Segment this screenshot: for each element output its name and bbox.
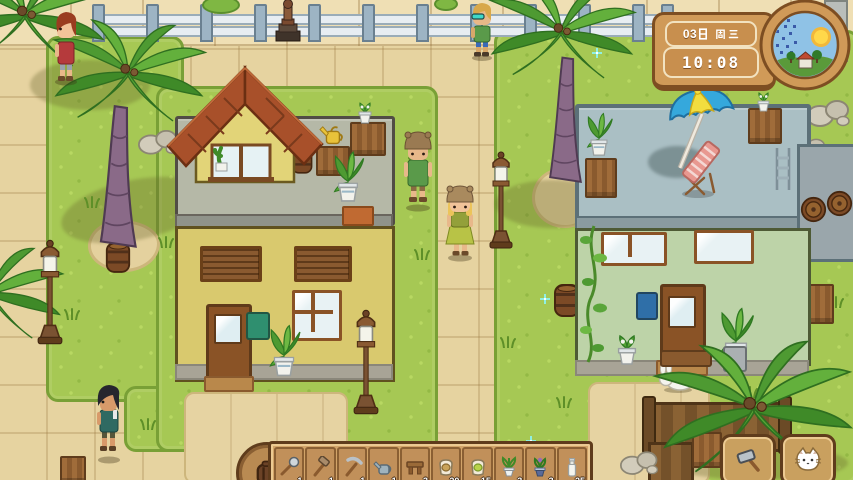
- npc-sunglasses-kid[interactable]: [464, 0, 500, 62]
- door-step: [204, 376, 254, 392]
- glyph-ri: [698, 28, 708, 40]
- item-count: 1: [360, 476, 365, 480]
- time-text: 10:08: [682, 53, 740, 72]
- npc-red-shirt-boy[interactable]: [48, 6, 84, 86]
- build-mode-button[interactable]: [720, 434, 776, 480]
- wall-vine: [574, 222, 626, 364]
- grass-tuft: [158, 236, 174, 248]
- game-screen: 03 03日 周三 10:08: [0, 0, 853, 480]
- potted-plant: [266, 320, 302, 378]
- barrel: [826, 190, 853, 217]
- item-count: 1: [329, 476, 334, 480]
- window-bar: [295, 310, 333, 314]
- potted-flower-icon: [529, 456, 551, 478]
- item-count: 20: [449, 476, 459, 480]
- hotbar-slot-potted-plant[interactable]: 3: [494, 447, 524, 480]
- hotbar-slot-shovel[interactable]: 1: [274, 447, 304, 480]
- small-potted-plant: [355, 102, 375, 124]
- small-crate: [60, 456, 86, 480]
- grass-tuft: [140, 418, 156, 430]
- date-display: 03 03日 周三: [665, 21, 757, 47]
- pickaxe-icon: [341, 456, 363, 478]
- street-lamp: [36, 236, 64, 348]
- shuttered-window: [294, 246, 352, 282]
- fence-post: [308, 4, 321, 42]
- grass-tuft: [414, 248, 430, 260]
- stool-icon: [404, 456, 426, 478]
- shuttered-window: [200, 246, 262, 282]
- potted-plant: [330, 148, 366, 202]
- street-lamp: [352, 306, 380, 418]
- hotbar-slot-seed-bag[interactable]: 20: [431, 447, 461, 480]
- item-count: 3: [423, 476, 428, 480]
- potted-plant-icon: [498, 456, 520, 478]
- npc-dark-hair-boy[interactable]: [90, 380, 128, 464]
- glyph-san: [728, 28, 739, 40]
- hotbar-slot-hammer[interactable]: 1: [305, 447, 335, 480]
- blue-mailbox[interactable]: [636, 292, 658, 320]
- time-display: 10:08: [663, 47, 759, 78]
- item-count: 3: [549, 476, 554, 480]
- hotbar-slot-potted-flower[interactable]: 3: [525, 447, 555, 480]
- statue: [271, 0, 305, 44]
- item-count: 1: [392, 476, 397, 480]
- grass-tuft: [556, 396, 572, 408]
- hammer-icon: [310, 456, 332, 478]
- hotbar-slot-pickaxe[interactable]: 1: [337, 447, 367, 480]
- seed-bag-icon: [435, 456, 457, 478]
- mallet-icon: [734, 446, 762, 474]
- fence-post: [416, 4, 429, 42]
- npc-green-dress-woman[interactable]: [440, 182, 480, 262]
- date-day: 03: [683, 27, 697, 41]
- barrel: [800, 196, 827, 223]
- fence-post: [362, 4, 375, 42]
- deck-bench: [748, 108, 782, 144]
- rocks: [806, 94, 852, 128]
- seed-bag-icon: [467, 456, 489, 478]
- small-potted-plant: [754, 92, 773, 112]
- hotbar-slot-stool[interactable]: 3: [400, 447, 430, 480]
- planter-box: [342, 206, 374, 226]
- shovel-icon: [278, 456, 300, 478]
- bottle-icon: [561, 456, 583, 478]
- beach-umbrella: [662, 88, 738, 178]
- door-window: [668, 296, 696, 328]
- npc-green-vest-man[interactable]: [398, 128, 438, 212]
- pool-ladder: [772, 142, 796, 196]
- door-window: [214, 314, 242, 344]
- glyph-zhou: [715, 28, 726, 40]
- hotbar: 1 1 1 1: [268, 441, 593, 480]
- grass-tuft: [500, 336, 516, 348]
- hotbar-slot-watering-can[interactable]: 1: [368, 447, 398, 480]
- cat-icon: [793, 446, 823, 474]
- item-count: 1: [297, 476, 302, 480]
- hotbar-slot-milk-bottle[interactable]: 25: [557, 447, 587, 480]
- street-lamp: [488, 148, 514, 252]
- sparkle: [540, 294, 550, 304]
- date-full-text: 03日 周三: [711, 34, 712, 35]
- watering-can-icon: [372, 456, 394, 478]
- fence-post: [254, 4, 267, 42]
- hotbar-slot-seed-bag-green[interactable]: 15: [462, 447, 492, 480]
- wide-window: [694, 230, 754, 264]
- item-count: 25: [575, 476, 585, 480]
- item-count: 3: [517, 476, 522, 480]
- pet-cat-button[interactable]: [780, 434, 836, 480]
- weather-clock: [759, 0, 851, 91]
- window-bar: [628, 235, 632, 257]
- item-count: 15: [481, 476, 491, 480]
